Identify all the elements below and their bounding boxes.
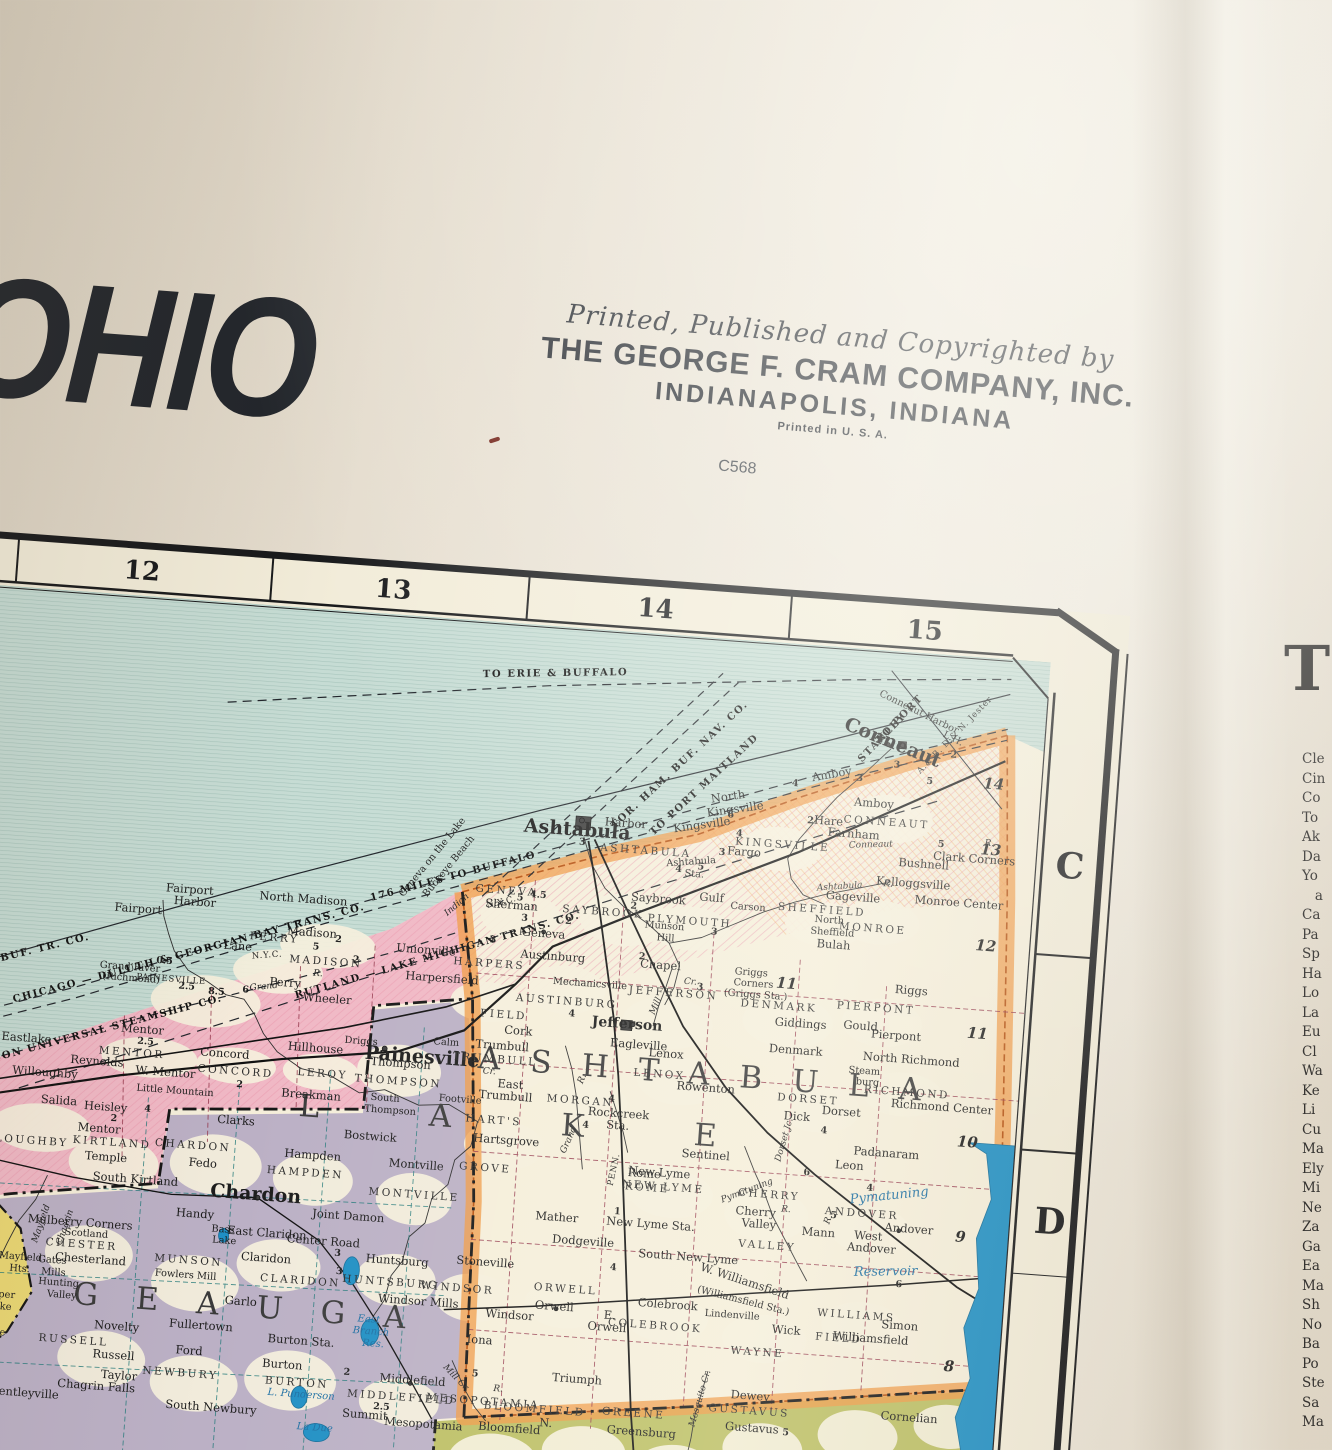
- map-label: 2: [950, 750, 957, 760]
- map-label: 14: [637, 595, 675, 624]
- map-label: 11: [966, 1026, 988, 1042]
- map-label: R.: [984, 839, 994, 849]
- map-label: 2: [110, 1114, 117, 1124]
- map-label: R.: [883, 880, 893, 890]
- map-label: THOMPSON: [354, 1073, 442, 1090]
- map-label: Hill: [656, 933, 675, 944]
- index-entry: Ma: [1302, 1140, 1332, 1160]
- map-label: Dorset: [821, 1105, 861, 1119]
- map-label: Fowlers Mill: [154, 1268, 216, 1282]
- map-label: Wheeler: [302, 992, 352, 1007]
- map-label: Mosquito Cr.: [688, 1369, 713, 1428]
- index-entry: Za: [1302, 1218, 1332, 1238]
- map-label: Geneva: [521, 927, 565, 942]
- map-label: Mann: [801, 1226, 835, 1240]
- map-label: HAMPDEN: [266, 1165, 344, 1181]
- map-label: Simon: [881, 1319, 919, 1333]
- map-label: 4: [675, 865, 682, 875]
- map-label: Fullertown: [169, 1318, 234, 1334]
- index-entries: CleCinCoToAkDaYo aCaPaSpHaLoLaEuClWaKeLi…: [1302, 750, 1332, 1433]
- map-label: 3: [718, 848, 725, 858]
- map-label: 4: [792, 779, 799, 789]
- map-label: Kingsville: [673, 816, 731, 835]
- map-label: Windsor: [485, 1308, 534, 1323]
- map-label: Amboy: [854, 797, 895, 811]
- map-label: AUSTINBURG: [515, 993, 617, 1011]
- map-label: Garlo: [224, 1295, 257, 1309]
- publisher-block: Printed, Published and Copyrighted by TH…: [499, 295, 1170, 513]
- map-label: 0.5: [156, 956, 173, 967]
- map-label: Conneaut: [849, 840, 893, 850]
- map-label: Branch: [352, 1326, 389, 1339]
- map-label: 3: [489, 935, 496, 945]
- map-label: New Lyme Sta.: [606, 1216, 695, 1234]
- index-entry: Ga: [1302, 1238, 1332, 1258]
- map-label: Greensburg: [606, 1424, 676, 1441]
- map-label: Triumph: [552, 1372, 603, 1387]
- map-label: Reservoir: [854, 1265, 918, 1279]
- map-label: Chagrin Falls: [57, 1378, 136, 1395]
- map-label: Dewey: [730, 1389, 770, 1403]
- map-label: Montville: [388, 1157, 444, 1173]
- map-label: Orwell: [534, 1300, 574, 1314]
- map-label: Huntsburg: [365, 1253, 429, 1269]
- map-label: 3: [893, 760, 900, 770]
- index-entry: Wa: [1302, 1062, 1332, 1082]
- map-labels: 12131415CD141312111098TO ERIE & BUFFALOT…: [0, 515, 1197, 1450]
- map-label: Mather: [535, 1210, 579, 1225]
- map-label: R.: [781, 1206, 791, 1216]
- map-label: Willoughby: [12, 1065, 78, 1081]
- map-label: 6: [803, 1168, 810, 1178]
- map-label: Pymatuning: [849, 1185, 929, 1206]
- map-label: Heisley: [84, 1100, 128, 1115]
- map-label: 5: [926, 777, 933, 787]
- map-label: PIERPONT: [836, 1000, 915, 1016]
- map-label: Carson: [730, 902, 766, 914]
- map-label: Breakman: [281, 1087, 341, 1103]
- map-label: PENN.: [607, 1153, 622, 1187]
- map-label: CLARIDON: [260, 1273, 341, 1289]
- map-label: 5: [697, 862, 704, 872]
- map-label: W. Mentor: [135, 1065, 196, 1081]
- map-label: 6: [895, 1280, 902, 1290]
- map-label: 2: [343, 1368, 350, 1378]
- index-entry: Ea: [1302, 1257, 1332, 1277]
- map-label: 2.5: [137, 1037, 154, 1048]
- map-label: Jefferson: [591, 1015, 663, 1034]
- index-entry: Ba: [1302, 1335, 1332, 1355]
- map-label: South Kirtland: [92, 1171, 178, 1189]
- map-label: 3: [696, 983, 703, 993]
- map-label: Austinburg: [520, 949, 586, 965]
- map-label: Hampden: [284, 1148, 341, 1164]
- map-label: 4: [582, 1121, 589, 1131]
- index-entry: Sa: [1302, 1394, 1332, 1414]
- index-entry: Pa: [1302, 926, 1332, 946]
- map-label: R.: [313, 970, 323, 980]
- index-entry: Co: [1302, 789, 1332, 809]
- index-entry: Yo: [1302, 867, 1332, 887]
- map-label: Richmond Center: [890, 1098, 993, 1117]
- map-label: Stoneville: [456, 1255, 515, 1271]
- map-label: WAYNE: [730, 1345, 784, 1359]
- map-label: 5: [312, 942, 319, 952]
- map-label: 3: [334, 1249, 341, 1259]
- map-label: East: [357, 1314, 380, 1326]
- map-label: 8: [943, 1359, 955, 1375]
- map-label: 12: [975, 938, 997, 954]
- map-label: Gustavus: [725, 1421, 779, 1436]
- map-label: Hartsgrove: [473, 1133, 540, 1149]
- map-label: 5: [782, 1428, 789, 1438]
- map-label: Munson: [644, 920, 685, 933]
- map-label: GUSTAVUS: [708, 1403, 790, 1419]
- map-label: MONTVILLE: [368, 1187, 460, 1204]
- map-label: Amboy: [811, 766, 852, 784]
- index-heading: T: [1284, 632, 1330, 705]
- map-label: Unionville: [396, 942, 456, 958]
- map-label: GROVE: [459, 1161, 512, 1175]
- index-entry: Sp: [1302, 945, 1332, 965]
- map-label: Bentleyville: [0, 1385, 59, 1401]
- map-label: Summit: [342, 1408, 388, 1423]
- map-label: La Due: [296, 1422, 333, 1435]
- map-label: Eastlake: [1, 1031, 52, 1046]
- map-label: Bloomfield: [478, 1421, 541, 1437]
- map-label: Clarks: [217, 1114, 255, 1128]
- map-label: Sta.: [606, 1119, 630, 1132]
- map-label: VALLEY: [738, 1239, 797, 1254]
- map-label: Fairport: [114, 902, 162, 917]
- map-label: 3: [710, 927, 717, 937]
- map-label: Sentinel: [681, 1148, 730, 1163]
- map-label: CHARDON: [155, 1138, 232, 1154]
- index-entry: La: [1302, 1004, 1332, 1024]
- map-label: 4: [568, 1009, 575, 1019]
- map-label: Andover: [847, 1241, 897, 1256]
- map-label: Hillhouse: [287, 1041, 343, 1057]
- index-entry: No: [1302, 1316, 1332, 1336]
- map-label: Cr.: [482, 1067, 496, 1077]
- map-label: Bulah: [816, 938, 851, 952]
- index-entry: Ste: [1302, 1374, 1332, 1394]
- map-label: MUNSON: [154, 1253, 223, 1269]
- map-label: GREENE: [602, 1406, 666, 1421]
- map-label: 2: [236, 1080, 243, 1090]
- map-label: Lake: [212, 1236, 237, 1248]
- map-label: N.: [539, 1417, 553, 1429]
- map-label: Cr.: [683, 978, 697, 988]
- map-label: Salida: [40, 1094, 77, 1108]
- index-entry: Cu: [1302, 1121, 1332, 1141]
- map-label: Burton Sta.: [267, 1333, 335, 1349]
- index-entry: Ha: [1302, 965, 1332, 985]
- map-label: Mill: [649, 996, 665, 1016]
- map-label: Mentor: [121, 1022, 165, 1037]
- map-label: South: [370, 1093, 400, 1105]
- map-label: Dodgeville: [552, 1234, 615, 1250]
- index-entry: Mi: [1302, 1179, 1332, 1199]
- map-label: 15: [906, 617, 944, 646]
- map-label: South Newbury: [165, 1399, 257, 1417]
- map-label: East Claridon: [227, 1225, 307, 1242]
- map-label: 2: [335, 935, 342, 945]
- map-label: North Madison: [259, 890, 348, 908]
- map-label: Colebrook: [637, 1297, 698, 1313]
- map-label: 2: [565, 917, 572, 927]
- map-label: Riggs: [894, 984, 928, 998]
- map-label: Joint Damon: [312, 1208, 385, 1225]
- map-label: 4: [144, 1104, 151, 1114]
- map-label: Monroe Center: [914, 894, 1004, 912]
- map-label: Lindenville: [704, 1309, 760, 1323]
- map-label: CONCORD: [197, 1064, 274, 1080]
- map-label: Handy: [176, 1207, 215, 1221]
- index-entry: Ke: [1302, 1082, 1332, 1102]
- map-label: Ashtabula: [523, 817, 631, 844]
- map-label: Leon: [835, 1159, 865, 1173]
- map-label: Lenox: [648, 1047, 684, 1061]
- map-label: (Richmond): [102, 972, 160, 986]
- map-label: South New Lyme: [638, 1248, 738, 1267]
- map-label: Harbor: [173, 895, 216, 910]
- map-label: 13: [374, 576, 412, 605]
- index-entry: a: [1302, 887, 1332, 907]
- map-label: Iona: [466, 1334, 493, 1347]
- map-label: 12: [123, 557, 161, 586]
- index-entry: Ely: [1302, 1160, 1332, 1180]
- map-label: C: [1054, 847, 1085, 885]
- map-label: Wick: [771, 1324, 800, 1338]
- map-label: Cork: [504, 1025, 533, 1039]
- map-label: Giddings: [774, 1016, 827, 1031]
- map-label: Novelty: [94, 1319, 140, 1334]
- map-label: 5: [516, 893, 523, 903]
- map-label: JEFFERSON: [628, 985, 718, 1002]
- map-label: D: [1033, 1203, 1067, 1241]
- map-label: TO ERIE & BUFFALO: [483, 668, 628, 680]
- index-entry: Eu: [1302, 1023, 1332, 1043]
- map-label: Hts.: [9, 1264, 30, 1275]
- map-label: L. Punderson: [267, 1388, 335, 1403]
- map-label: Grand: [249, 982, 278, 994]
- map-label: Chardon: [210, 1182, 302, 1208]
- map-label: Russell: [92, 1348, 135, 1363]
- map-label: Bostwick: [343, 1129, 397, 1144]
- map-label: Pierpont: [871, 1028, 922, 1043]
- map-label: FIELD: [480, 1008, 528, 1022]
- index-entry: Da: [1302, 848, 1332, 868]
- map-label: 2: [630, 901, 637, 911]
- map-label: 4: [610, 1263, 617, 1273]
- index-entry: Ca: [1302, 906, 1332, 926]
- index-entry: Ak: [1302, 828, 1332, 848]
- map-label: 8.5: [208, 987, 225, 998]
- map-label: 6: [727, 810, 734, 820]
- index-entry: Ma: [1302, 1277, 1332, 1297]
- map-label: 6: [242, 985, 249, 995]
- map-label: 9: [955, 1229, 967, 1245]
- index-entry: Lo: [1302, 984, 1332, 1004]
- map-label: 4: [866, 1184, 873, 1194]
- map-label: Little Mountain: [136, 1084, 214, 1099]
- index-entry: Cin: [1302, 770, 1332, 790]
- map-label: N.Y.C.: [252, 950, 283, 961]
- map-label: WILLOUGHBY: [0, 1131, 69, 1149]
- index-entry: Sh: [1302, 1296, 1332, 1316]
- map-label: 5: [471, 1369, 478, 1379]
- map-label: NEW LYME: [622, 1179, 705, 1196]
- map-label: Cornelian: [880, 1410, 938, 1426]
- map-label: Orange: [0, 1326, 6, 1338]
- map-label: ORWELL: [533, 1282, 597, 1297]
- map-label: 2: [638, 952, 645, 962]
- map-label: Harpersfield: [405, 970, 479, 987]
- map-label: Mesopotamia: [384, 1416, 463, 1433]
- map-label: Denmark: [768, 1043, 822, 1058]
- map-label: 4: [820, 1126, 827, 1136]
- map-label: 3: [856, 774, 863, 784]
- map-label: Rowenton: [676, 1080, 735, 1096]
- map-label: Claridon: [241, 1251, 292, 1266]
- map-label: Saybrook: [631, 891, 687, 906]
- map-label: NEWBURY: [142, 1365, 219, 1381]
- index-column: T CleCinCoToAkDaYo aCaPaSpHaLoLaEuClWaKe…: [1284, 632, 1330, 705]
- index-entry: Ma: [1302, 1413, 1332, 1433]
- map-label: Ford: [175, 1344, 203, 1357]
- index-entry: Cle: [1302, 750, 1332, 770]
- index-entry: Li: [1302, 1101, 1332, 1121]
- map-label: Res.: [362, 1339, 384, 1351]
- map-label: 11: [776, 976, 798, 992]
- map-label: Mayfield: [0, 1251, 42, 1264]
- index-entry: Cl: [1302, 1043, 1332, 1063]
- map-label: R.: [493, 1385, 503, 1395]
- map-label: 2: [352, 955, 359, 965]
- index-entry: Ne: [1302, 1199, 1332, 1219]
- map-label: Gates: [38, 1255, 67, 1267]
- map-label: BLOOMFIELD: [483, 1401, 586, 1419]
- map-label: CLEVE. & BUF. TR. CO.: [0, 933, 91, 982]
- map-label: HARPERS: [453, 956, 526, 972]
- map-label: DENMARK: [740, 998, 817, 1014]
- map-label: 14: [983, 776, 1005, 792]
- map-sheet: 12131415CD141312111098TO ERIE & BUFFALOT…: [0, 515, 1197, 1450]
- map-label: Concord: [200, 1046, 250, 1061]
- map-title: OHIO: [0, 238, 321, 459]
- map-label: Valley: [741, 1217, 777, 1231]
- map-label: Fedo: [188, 1157, 217, 1171]
- map-label: 3: [579, 838, 586, 848]
- map-label: 4: [608, 1094, 615, 1104]
- map-label: Chapel: [640, 958, 682, 972]
- map-label: 10: [956, 1134, 978, 1150]
- map-label: Temple: [84, 1150, 127, 1165]
- map-label: Indian: [443, 893, 471, 919]
- map-label: Ashtabula: [666, 856, 716, 869]
- map-label: Williamsfield: [833, 1330, 909, 1347]
- map-label: LEROY: [297, 1067, 348, 1081]
- index-entry: Po: [1302, 1355, 1332, 1375]
- photo-of-wall-map: { "header": { "title": "OHIO", "byline":…: [0, 0, 1332, 1450]
- index-entry: To: [1302, 809, 1332, 829]
- map-label: Middlefield: [379, 1372, 446, 1388]
- map-label: Mechanicsville: [553, 977, 628, 992]
- map-label: Pepper: [0, 1289, 15, 1301]
- map-label: Lane: [223, 940, 252, 954]
- map-label: Burton: [262, 1358, 303, 1372]
- map-label: Hunting: [38, 1277, 79, 1290]
- map-label: 2.5: [178, 982, 195, 993]
- map-label: 5: [830, 1211, 837, 1221]
- map-label: 3: [521, 913, 528, 923]
- map-label: Pike: [0, 1301, 12, 1312]
- map-label: KIRTLAND: [72, 1135, 151, 1151]
- map-label: Gulf: [699, 891, 724, 904]
- map-label: Valley: [47, 1290, 77, 1302]
- map-label: Andover: [884, 1222, 934, 1237]
